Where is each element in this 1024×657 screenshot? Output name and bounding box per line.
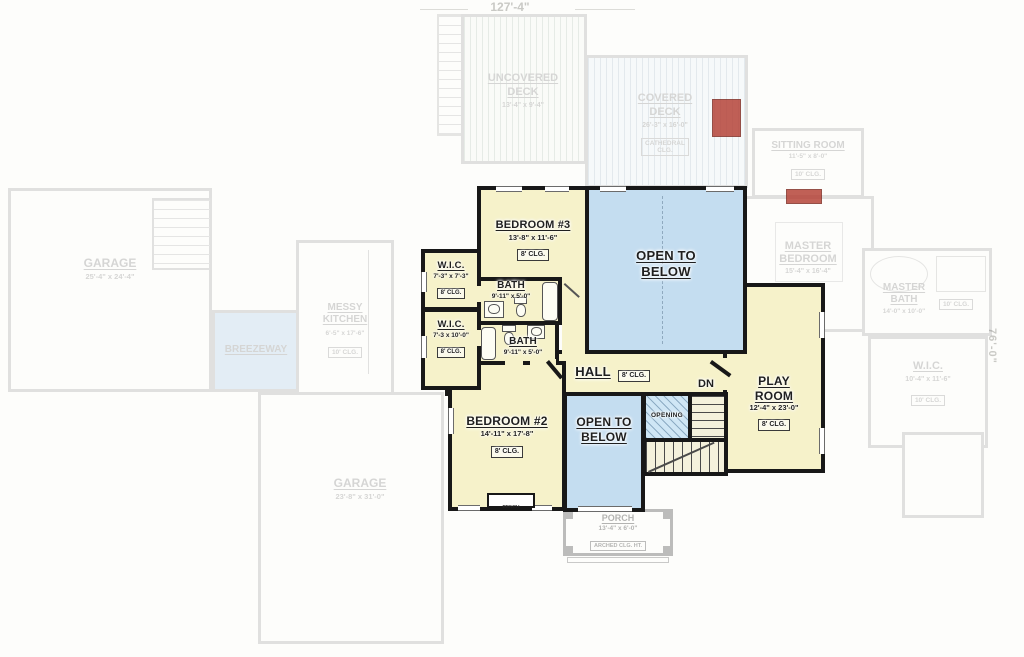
window [578, 506, 632, 512]
window [819, 312, 825, 338]
bedroom3-corridor [562, 277, 585, 354]
bedroom2-label: BEDROOM #2 [448, 414, 566, 428]
bath-lower-label: BATH [492, 336, 554, 348]
open-to-below-stair-room [563, 392, 645, 512]
playroom-clg: 8' CLG. [725, 413, 823, 432]
window [706, 186, 734, 192]
window [545, 186, 569, 192]
wic-lower-label: W.I.C. [423, 319, 479, 330]
open-to-below-main-label-1: OPEN TO [587, 248, 745, 263]
porch-clg: ARCHED CLG. HT. [563, 533, 673, 552]
wic-upper-label: W.I.C. [423, 260, 479, 271]
window [496, 186, 522, 192]
bench: BENCH [487, 493, 535, 508]
window [458, 505, 480, 511]
porch-step [567, 557, 669, 563]
wic-upper-dims: 7'-3" x 7'-3" [423, 273, 479, 281]
porch-label: PORCH [563, 513, 673, 524]
bath-lower-dims: 9'-11" x 5'-0" [492, 349, 554, 357]
stairs-lower-run [642, 438, 728, 476]
bath-upper-dims: 9'-11" x 5'-0" [482, 293, 540, 301]
bedroom3-label: BEDROOM #3 [477, 219, 589, 232]
wic-lower-clg: 8' CLG. [423, 340, 479, 359]
open-to-below-stair-label-1: OPEN TO [566, 415, 642, 429]
bedroom2-clg: 8' CLG. [448, 440, 566, 459]
door-gap [505, 359, 523, 367]
toilet-tank [502, 325, 516, 332]
open-to-below-stair-label-2: BELOW [566, 430, 642, 444]
sink-basin [531, 327, 542, 336]
bath-upper-label: BATH [482, 280, 540, 292]
stairs-dn-label: DN [692, 378, 720, 391]
bedroom2-dims: 14'-11" x 17'-8" [448, 430, 566, 439]
bedroom3-dims: 13'-8" x 11'-6" [477, 234, 589, 243]
wic-lower-dims: 7'-3 x 10'-0" [423, 332, 479, 340]
wic-upper-clg: 8' CLG. [423, 281, 479, 300]
bench-label: BENCH [502, 505, 519, 510]
open-to-below-main-label-2: BELOW [587, 264, 745, 279]
playroom-label-1: PLAY [725, 374, 823, 388]
toilet-bowl [516, 304, 526, 317]
playroom-dims: 12'-4" x 23'-0" [725, 404, 823, 413]
bedroom3-clg: 8' CLG. [477, 243, 589, 262]
porch-dims: 13'-4" x 6'-0" [563, 525, 673, 533]
window [532, 505, 552, 511]
sink-basin [488, 304, 500, 314]
bathtub [542, 282, 558, 321]
hall-label: HALL [570, 364, 616, 379]
floor-plan-canvas: 127'-4" 76'-0" GARAGE 25'-4" x 24'-4" BR… [0, 0, 1024, 657]
playroom-label-2: ROOM [725, 389, 823, 403]
hall-clg: 8' CLG. [614, 364, 654, 383]
window [819, 428, 825, 454]
stairs-upper-run [688, 392, 728, 442]
opening-label: OPENING [644, 412, 690, 420]
window [600, 186, 626, 192]
